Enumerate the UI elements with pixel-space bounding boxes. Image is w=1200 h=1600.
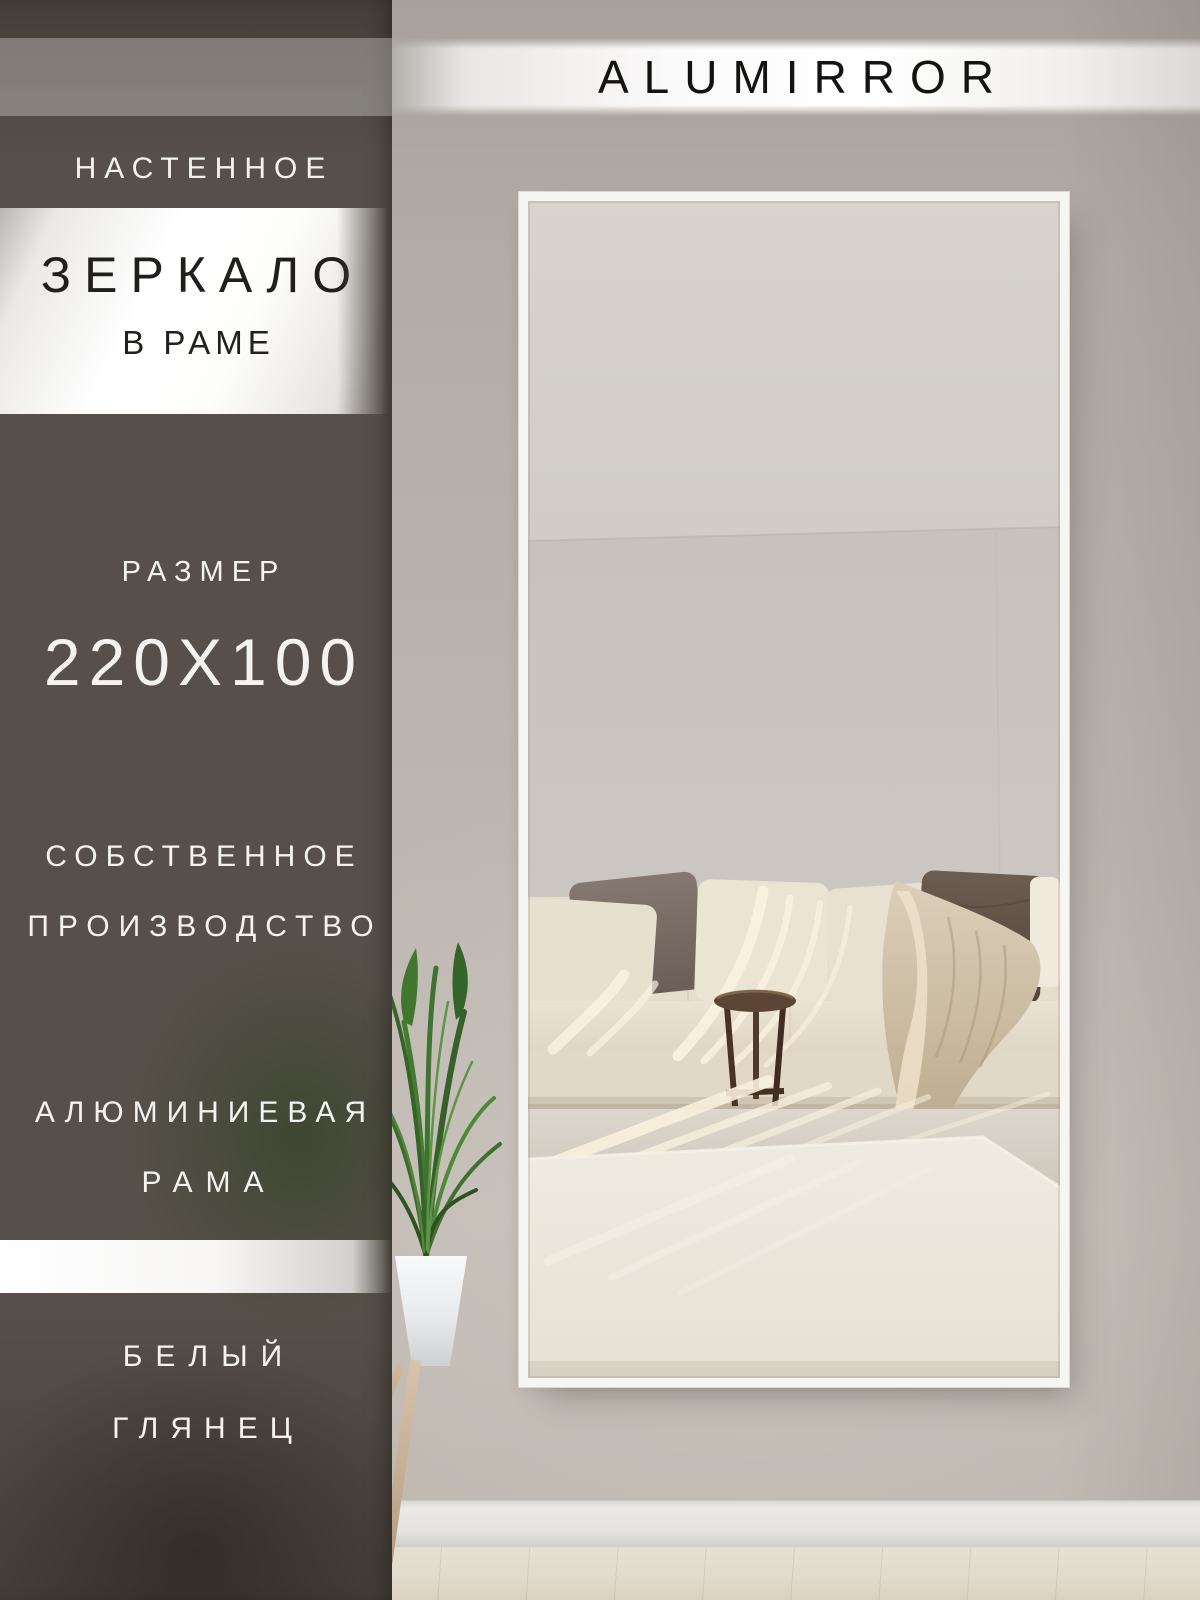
product-banner: ЗЕРКАЛО В РАМЕ [0,208,392,414]
product-card: ALUMIRROR ЗЕРКАЛО В РАМЕ НАСТЕННОЕ РАЗМЕ… [0,0,1200,1600]
brand-name: ALUMIRROR [392,38,1200,116]
pillow-cream-left [528,897,658,1016]
feature-production-line1: СОБСТВЕННОЕ [0,840,400,874]
size-label: РАЗМЕР [0,556,400,589]
feature-production-line2: ПРОИЗВОДСТВО [0,910,401,944]
finish-stripe [0,1240,392,1293]
finish-line2: ГЛЯНЕЦ [0,1412,404,1446]
reflection-ceiling [528,201,1060,541]
brand-banner-dim-segment [0,38,392,116]
feature-frame-line2: РАМА [0,1166,405,1200]
product-title: ЗЕРКАЛО [0,246,392,304]
feature-frame-line1: АЛЮМИНИЕВАЯ [0,1096,401,1130]
size-value: 220Х100 [0,624,400,700]
mirror-reflection [528,201,1060,1378]
reflection-rug [528,1137,1060,1378]
mount-type-label: НАСТЕННОЕ [0,152,400,186]
product-subtitle: В РАМЕ [0,324,392,362]
finish-line1: БЕЛЫЙ [0,1340,405,1374]
mirror-frame [519,192,1069,1387]
